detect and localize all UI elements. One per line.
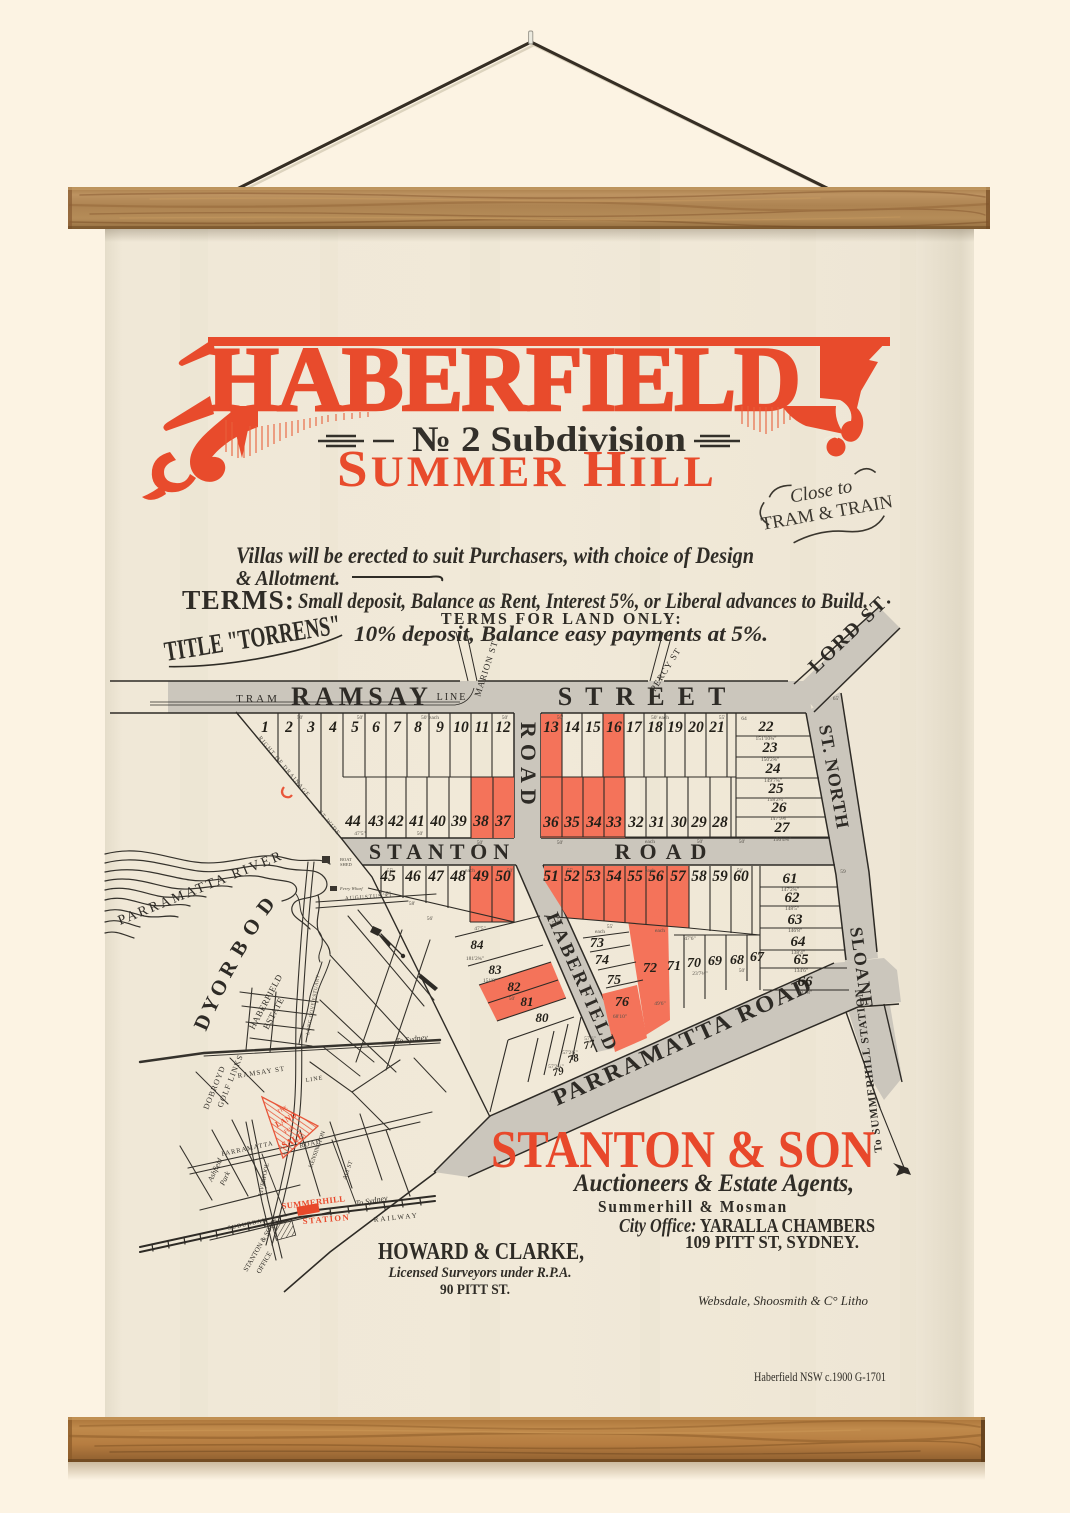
svg-text:50': 50' (509, 996, 516, 1002)
svg-text:68'10": 68'10" (613, 1014, 627, 1020)
svg-text:48: 48 (449, 868, 466, 885)
svg-text:71: 71 (667, 959, 681, 974)
svg-text:53: 53 (585, 868, 601, 885)
svg-text:21: 21 (708, 719, 725, 736)
svg-text:2: 2 (284, 719, 293, 736)
svg-text:ROAD: ROAD (516, 722, 541, 811)
svg-text:50': 50' (502, 715, 509, 721)
svg-text:75: 75 (607, 973, 621, 988)
svg-text:SHED: SHED (340, 862, 353, 867)
svg-text:59: 59 (712, 868, 728, 885)
svg-text:41: 41 (408, 813, 425, 830)
svg-text:47: 47 (427, 868, 445, 885)
svg-text:31: 31 (648, 814, 665, 831)
svg-text:5: 5 (351, 719, 359, 736)
svg-text:24: 24 (765, 761, 782, 777)
svg-text:LINE: LINE (437, 692, 468, 703)
svg-text:Licensed Surveyors under R.P.A: Licensed Surveyors under R.P.A. (388, 1265, 572, 1281)
svg-text:50': 50' (557, 715, 564, 721)
svg-text:50': 50' (507, 868, 514, 874)
svg-text:50' each: 50' each (651, 715, 669, 721)
svg-text:83: 83 (489, 962, 503, 977)
svg-text:9: 9 (436, 719, 444, 736)
svg-text:50': 50' (739, 839, 746, 845)
svg-text:47'5": 47'5" (354, 831, 366, 837)
svg-text:50': 50' (557, 840, 564, 846)
svg-text:50': 50' (739, 968, 746, 974)
svg-text:147'9⅝": 147'9⅝" (770, 816, 788, 822)
svg-text:59: 59 (840, 869, 846, 875)
svg-text:RAMSAY: RAMSAY (291, 682, 433, 711)
svg-text:SUMMER HILL: SUMMER HILL (337, 441, 717, 498)
svg-text:4: 4 (328, 719, 337, 736)
svg-text:12: 12 (495, 719, 511, 736)
svg-text:109 PITT ST, SYDNEY.: 109 PITT ST, SYDNEY. (685, 1232, 859, 1252)
svg-text:Haberfield NSW c.1900 G-1701: Haberfield NSW c.1900 G-1701 (754, 1369, 886, 1384)
svg-text:43: 43 (367, 813, 384, 830)
svg-text:47'5": 47'5" (474, 926, 486, 932)
svg-text:37: 37 (494, 813, 512, 830)
svg-text:23: 23 (762, 740, 779, 756)
svg-text:19: 19 (667, 719, 683, 736)
svg-text:55': 55' (719, 715, 726, 721)
svg-text:each: each (465, 868, 475, 874)
svg-text:38: 38 (472, 813, 489, 830)
svg-text:18: 18 (647, 719, 663, 736)
svg-text:7: 7 (393, 719, 402, 736)
svg-text:3: 3 (306, 719, 315, 736)
svg-text:Websdale, Shoosmith & C° Litho: Websdale, Shoosmith & C° Litho (698, 1293, 868, 1308)
svg-text:57'2¾": 57'2¾" (562, 1049, 578, 1056)
svg-text:61: 61 (783, 871, 798, 887)
svg-text:56': 56' (427, 916, 434, 922)
svg-text:50': 50' (477, 840, 484, 846)
svg-text:55': 55' (387, 868, 394, 874)
svg-text:72: 72 (643, 961, 657, 976)
svg-text:50': 50' (417, 831, 424, 837)
svg-text:each: each (645, 868, 655, 874)
svg-text:15: 15 (585, 719, 601, 736)
svg-text:14: 14 (564, 719, 580, 736)
svg-text:50': 50' (737, 868, 744, 874)
svg-text:151'8": 151'8" (483, 978, 497, 984)
svg-text:68: 68 (730, 953, 744, 968)
svg-text:57'6": 57'6" (584, 1036, 596, 1042)
svg-text:13: 13 (543, 719, 559, 736)
svg-text:76: 76 (615, 995, 629, 1010)
svg-text:65': 65' (833, 696, 840, 702)
svg-text:30: 30 (670, 814, 687, 831)
svg-text:74: 74 (595, 953, 609, 968)
svg-text:HOWARD & CLARKE,: HOWARD & CLARKE, (378, 1239, 584, 1265)
svg-text:58': 58' (409, 901, 416, 907)
svg-text:HABERFIELD: HABERFIELD (207, 328, 799, 430)
svg-text:29: 29 (690, 814, 707, 831)
svg-text:158'2¼": 158'2¼" (767, 797, 785, 803)
svg-text:17: 17 (626, 719, 643, 736)
svg-text:each: each (655, 928, 665, 934)
svg-text:63: 63 (788, 912, 804, 928)
svg-text:132'8": 132'8" (798, 990, 812, 996)
svg-text:81: 81 (521, 994, 534, 1009)
svg-text:11: 11 (475, 719, 490, 736)
svg-text:64: 64 (791, 934, 807, 950)
svg-text:70: 70 (687, 956, 701, 971)
svg-text:146'8": 146'8" (788, 928, 802, 934)
svg-text:138'4": 138'4" (791, 950, 805, 956)
svg-text:Ferry Wharf: Ferry Wharf (339, 886, 363, 891)
svg-text:148'5": 148'5" (785, 906, 799, 912)
svg-text:90 PITT ST.: 90 PITT ST. (440, 1282, 510, 1298)
svg-text:27: 27 (774, 820, 791, 836)
svg-text:156'4¾": 156'4¾" (773, 836, 791, 843)
svg-text:66: 66 (798, 974, 814, 990)
svg-text:TRAM: TRAM (236, 693, 280, 705)
svg-text:STANTON: STANTON (369, 839, 515, 864)
svg-text:each: each (645, 839, 655, 845)
svg-text:Auctioneers & Estate Agents,: Auctioneers & Estate Agents, (572, 1170, 854, 1197)
svg-text:181'2¾": 181'2¾" (466, 955, 484, 962)
svg-text:33: 33 (605, 814, 622, 831)
svg-text:Summerhill & Mosman: Summerhill & Mosman (598, 1197, 788, 1216)
svg-text:134'6": 134'6" (794, 968, 808, 974)
svg-text:67: 67 (750, 950, 765, 965)
svg-text:42: 42 (387, 813, 404, 830)
svg-text:55': 55' (607, 924, 614, 930)
svg-text:10% deposit, Balance easy paym: 10% deposit, Balance easy payments at 5%… (354, 621, 768, 646)
svg-text:54': 54' (552, 921, 559, 927)
svg-text:32: 32 (627, 814, 644, 831)
svg-text:44: 44 (344, 813, 361, 830)
svg-text:50' each: 50' each (421, 715, 439, 721)
svg-text:46: 46 (404, 868, 421, 885)
svg-text:151'10¾": 151'10¾" (755, 735, 776, 742)
svg-text:55: 55 (627, 868, 643, 885)
svg-text:50': 50' (697, 839, 704, 845)
svg-text:49'6": 49'6" (654, 1001, 666, 1007)
svg-text:47'6": 47'6" (684, 936, 696, 942)
svg-text:55': 55' (567, 868, 574, 874)
svg-text:6: 6 (372, 719, 380, 736)
svg-text:10: 10 (453, 719, 469, 736)
svg-text:54: 54 (606, 868, 622, 885)
svg-text:50': 50' (297, 715, 304, 721)
svg-text:50': 50' (357, 715, 364, 721)
svg-text:80: 80 (536, 1010, 550, 1025)
svg-text:40: 40 (429, 813, 446, 830)
svg-text:8: 8 (414, 719, 422, 736)
svg-text:16: 16 (606, 719, 622, 736)
svg-text:22: 22 (758, 719, 775, 735)
svg-text:69: 69 (708, 954, 722, 969)
svg-text:57: 57 (670, 868, 687, 885)
svg-text:35: 35 (563, 814, 580, 831)
svg-text:58: 58 (691, 868, 707, 885)
svg-text:84: 84 (471, 937, 485, 952)
svg-text:TERMS:: TERMS: (182, 585, 295, 615)
svg-text:73: 73 (590, 936, 604, 951)
svg-text:20: 20 (687, 719, 704, 736)
svg-text:23'7¾": 23'7¾" (692, 970, 708, 977)
svg-text:64: 64 (741, 716, 747, 722)
svg-text:36: 36 (542, 814, 559, 831)
svg-text:150'2⅝": 150'2⅝" (761, 757, 779, 763)
svg-text:57'2¾": 57'2¾" (548, 1063, 564, 1070)
svg-text:1: 1 (261, 719, 269, 736)
svg-text:28: 28 (711, 814, 728, 831)
svg-text:each: each (595, 929, 605, 935)
svg-text:Villas will be erected to suit: Villas will be erected to suit Purchaser… (236, 543, 754, 568)
svg-text:149'7¾": 149'7¾" (764, 777, 782, 784)
svg-text:82: 82 (508, 979, 522, 994)
svg-text:34: 34 (585, 814, 602, 831)
svg-text:39: 39 (450, 813, 467, 830)
svg-text:51: 51 (543, 868, 559, 885)
svg-text:147'2¾": 147'2¾" (781, 886, 799, 893)
